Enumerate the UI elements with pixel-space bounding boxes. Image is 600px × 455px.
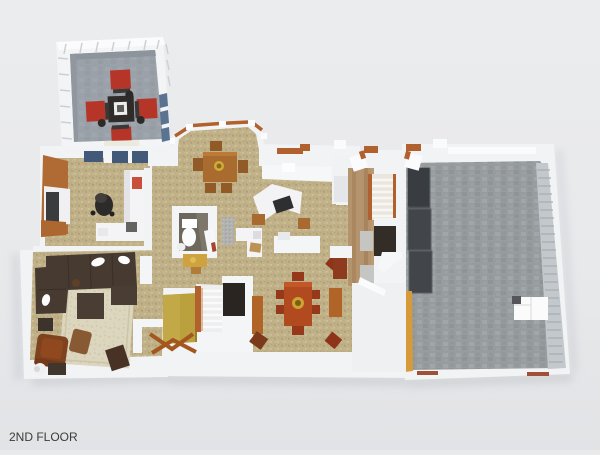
svg-text:2ND FLOOR: 2ND FLOOR bbox=[9, 430, 78, 444]
